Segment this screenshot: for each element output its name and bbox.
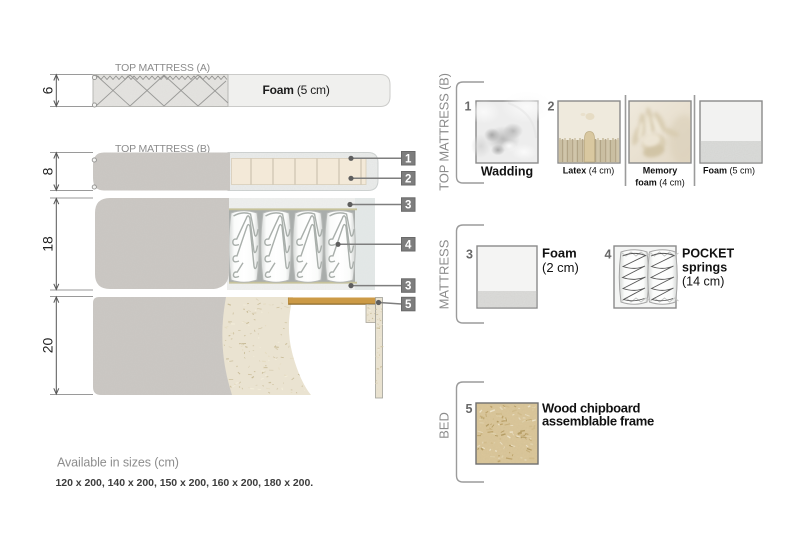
svg-text:18: 18 <box>40 236 56 252</box>
svg-text:assemblable frame: assemblable frame <box>542 414 654 429</box>
svg-text:Foam (5 cm): Foam (5 cm) <box>263 83 330 97</box>
svg-text:foam (4 cm): foam (4 cm) <box>635 178 685 188</box>
svg-text:4: 4 <box>605 248 612 262</box>
svg-text:Foam (5 cm): Foam (5 cm) <box>703 166 755 176</box>
svg-text:4: 4 <box>405 239 412 251</box>
svg-text:5: 5 <box>466 402 473 416</box>
svg-text:3: 3 <box>405 200 411 212</box>
svg-text:(2 cm): (2 cm) <box>542 260 579 275</box>
svg-text:(14 cm): (14 cm) <box>682 275 724 289</box>
svg-text:MATTRESS: MATTRESS <box>437 239 452 309</box>
svg-text:Memory: Memory <box>643 166 678 176</box>
svg-text:POCKET: POCKET <box>682 247 734 261</box>
svg-text:3: 3 <box>466 248 473 262</box>
svg-text:TOP MATTRESS (A): TOP MATTRESS (A) <box>115 62 210 74</box>
svg-text:BED: BED <box>437 412 452 439</box>
svg-text:8: 8 <box>40 167 56 175</box>
svg-text:TOP MATTRESS (B): TOP MATTRESS (B) <box>437 73 452 190</box>
svg-text:5: 5 <box>405 299 412 311</box>
svg-text:2: 2 <box>548 100 555 114</box>
svg-text:20: 20 <box>40 338 56 354</box>
svg-text:2: 2 <box>405 173 411 185</box>
svg-text:3: 3 <box>405 281 411 293</box>
svg-text:Wadding: Wadding <box>481 165 533 179</box>
svg-text:1: 1 <box>405 153 412 165</box>
svg-text:Foam: Foam <box>542 246 577 261</box>
svg-text:Available in sizes (cm): Available in sizes (cm) <box>57 456 179 470</box>
svg-text:Latex (4 cm): Latex (4 cm) <box>563 166 615 176</box>
svg-text:120 x 200, 140 x 200, 150 x 20: 120 x 200, 140 x 200, 150 x 200, 160 x 2… <box>56 477 314 489</box>
svg-text:springs: springs <box>682 261 727 275</box>
svg-text:6: 6 <box>40 86 56 94</box>
